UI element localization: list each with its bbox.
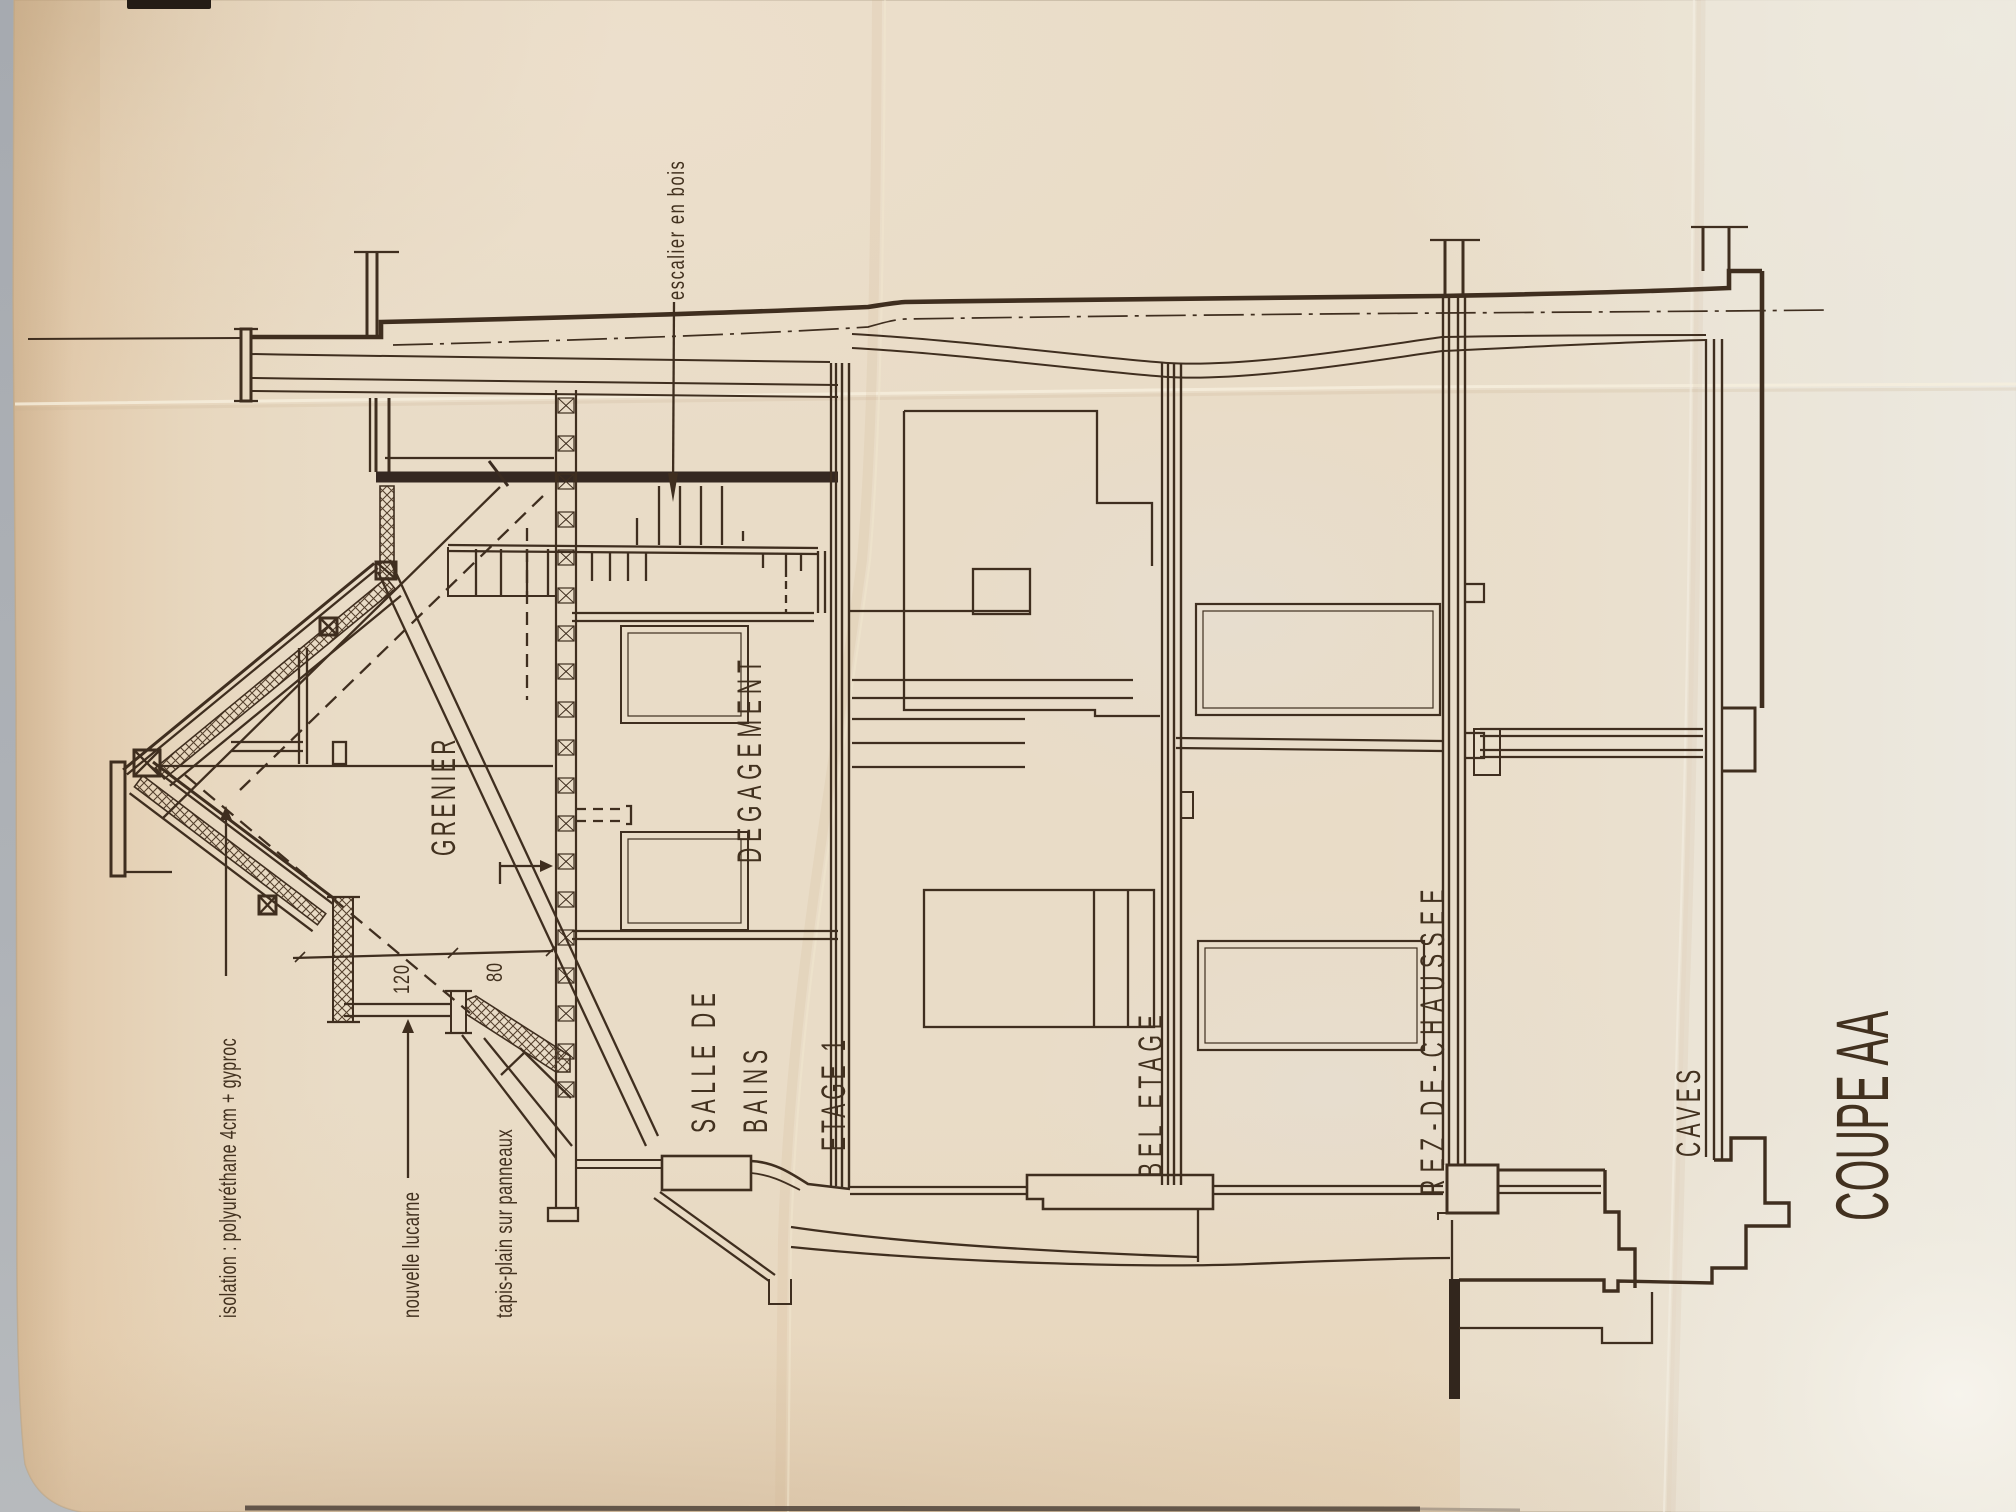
svg-text:SALLE DE: SALLE DE <box>684 988 722 1133</box>
svg-text:tapis-plain sur panneaux: tapis-plain sur panneaux <box>492 1129 517 1318</box>
svg-text:BEL ETAGE: BEL ETAGE <box>1131 1009 1169 1177</box>
svg-text:BAINS: BAINS <box>736 1045 774 1133</box>
svg-text:REZ-DE-CHAUSSEE: REZ-DE-CHAUSSEE <box>1413 882 1451 1195</box>
svg-text:nouvelle lucarne: nouvelle lucarne <box>399 1192 424 1318</box>
svg-text:ETAGE 1: ETAGE 1 <box>814 1036 852 1151</box>
svg-text:CAVES: CAVES <box>1669 1065 1707 1157</box>
svg-text:escalier en bois: escalier en bois <box>664 160 689 300</box>
svg-text:80: 80 <box>483 962 508 982</box>
svg-text:GRENIER: GRENIER <box>424 736 462 856</box>
svg-text:120: 120 <box>390 964 415 994</box>
svg-text:isolation : polyuréthane 4cm +: isolation : polyuréthane 4cm + gyproc <box>216 1038 241 1318</box>
svg-text:COUPE AA: COUPE AA <box>1821 1011 1904 1221</box>
